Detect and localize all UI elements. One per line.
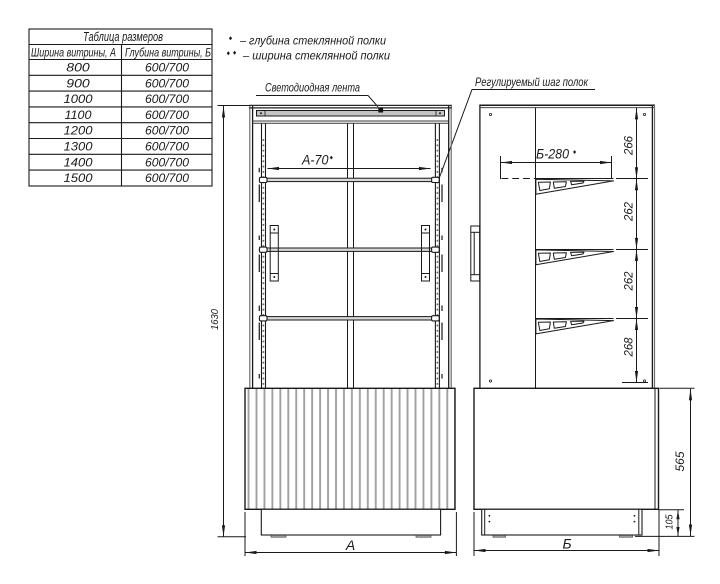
svg-text:– ширина стеклянной полки: – ширина стеклянной полки xyxy=(242,49,390,63)
svg-text:– глубина стеклянной полки: – глубина стеклянной полки xyxy=(239,34,386,48)
svg-text:1000: 1000 xyxy=(64,92,93,106)
svg-text:1200: 1200 xyxy=(64,124,93,138)
svg-text:600/700: 600/700 xyxy=(145,76,189,90)
svg-text:600/700: 600/700 xyxy=(145,155,189,169)
svg-text:600/700: 600/700 xyxy=(145,171,189,185)
svg-text:900: 900 xyxy=(66,76,90,90)
svg-text:Регулируемый шаг полок: Регулируемый шаг полок xyxy=(475,75,589,89)
svg-text:800: 800 xyxy=(66,61,90,75)
svg-text:600/700: 600/700 xyxy=(145,108,189,122)
svg-text:Ширина витрины, А: Ширина витрины, А xyxy=(31,48,116,60)
svg-text:А-70: А-70 xyxy=(301,152,329,168)
svg-text:266: 266 xyxy=(624,135,636,156)
svg-text:600/700: 600/700 xyxy=(145,92,189,106)
svg-text:1300: 1300 xyxy=(64,140,93,154)
svg-text:1630: 1630 xyxy=(209,309,221,330)
svg-text:1100: 1100 xyxy=(65,108,92,122)
svg-text:Светодиодная лента: Светодиодная лента xyxy=(265,81,360,95)
svg-text:600/700: 600/700 xyxy=(145,140,189,154)
svg-text:1400: 1400 xyxy=(64,155,93,169)
svg-text:262: 262 xyxy=(624,271,636,292)
svg-text:565: 565 xyxy=(675,451,687,472)
svg-text:А: А xyxy=(345,537,355,553)
svg-text:Б: Б xyxy=(562,536,571,552)
svg-text:600/700: 600/700 xyxy=(145,61,189,75)
svg-text:Глубина витрины, Б: Глубина витрины, Б xyxy=(125,48,211,60)
svg-text:1500: 1500 xyxy=(64,171,93,185)
svg-text:600/700: 600/700 xyxy=(145,124,189,138)
svg-text:268: 268 xyxy=(624,337,636,358)
svg-text:262: 262 xyxy=(624,201,636,222)
svg-text:105: 105 xyxy=(664,514,676,529)
svg-text:Таблица размеров: Таблица размеров xyxy=(83,29,163,44)
svg-text:Б-280: Б-280 xyxy=(536,146,569,162)
